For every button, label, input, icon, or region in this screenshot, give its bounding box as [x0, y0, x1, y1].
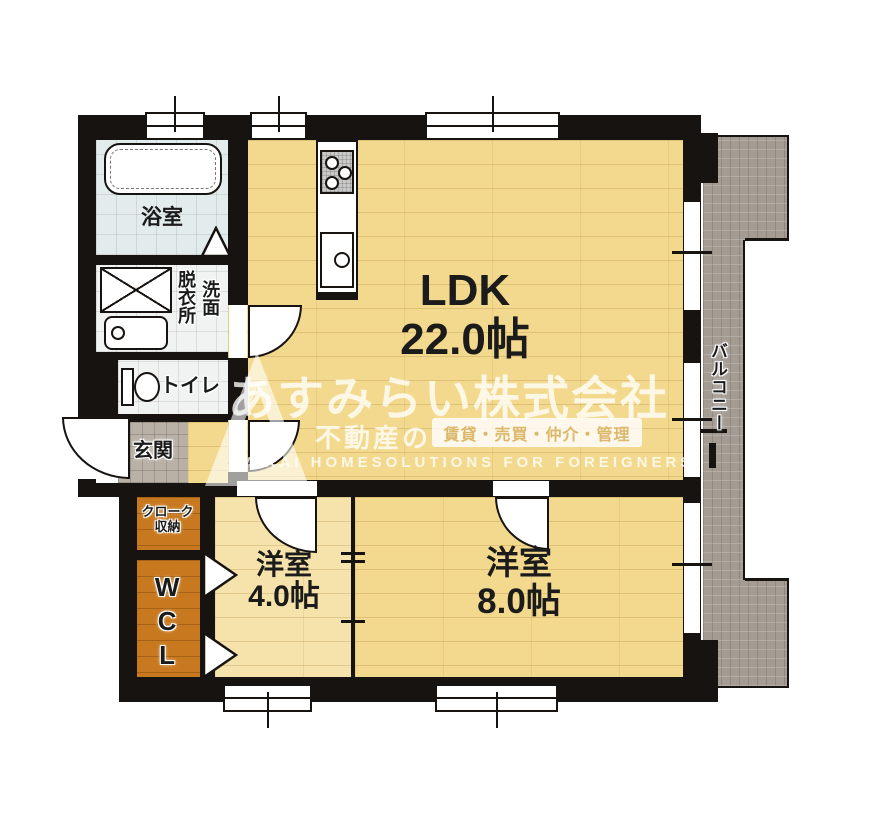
entrance-label: 玄関 — [118, 440, 188, 462]
wall-service-ldk-2 — [228, 358, 248, 420]
bathtub — [104, 143, 222, 195]
balcony-step-line-lower — [745, 578, 789, 581]
window-tick — [672, 418, 712, 421]
washroom-label-right: 洗面 — [200, 280, 220, 316]
bedroom-large-door-gap — [493, 481, 549, 496]
bedroom-small-door-gap — [237, 481, 317, 496]
window-ldk-top — [425, 112, 560, 140]
stove-icon — [320, 150, 354, 194]
bedroom-small-label: 洋室 4.0帖 — [215, 549, 353, 614]
wall-washroom-toilet — [118, 352, 228, 360]
window-ldk-balcony-1 — [684, 202, 700, 310]
floorplan-canvas: LDK 22.0帖 洋室 4.0帖 洋室 8.0帖 浴室 脱衣所 洗面 トイレ … — [0, 0, 882, 824]
bedroom-large-size: 8.0帖 — [355, 582, 683, 621]
burner-icon — [325, 156, 339, 170]
ldk-size: 22.0帖 — [320, 315, 610, 364]
balcony-step-line-upper — [745, 238, 789, 241]
cloak-line2: 収納 — [130, 520, 205, 535]
wall-balcony-stub-top — [701, 133, 718, 183]
washroom-label-left: 脱衣所 — [176, 270, 196, 324]
window-bedroom-balcony — [684, 503, 700, 633]
washing-machine-space — [100, 267, 172, 313]
balcony-partition-mark-v — [709, 443, 716, 468]
hall-floor — [188, 422, 228, 483]
wall-toilet-entrance — [118, 414, 228, 422]
ldk-name: LDK — [320, 266, 610, 315]
wcl-label: WCL — [152, 572, 181, 674]
cloak-label: クローク 収納 — [130, 505, 205, 534]
window-bathroom — [145, 112, 205, 140]
bedroom-small-size: 4.0帖 — [215, 580, 353, 614]
balcony-label: バルコニー — [708, 342, 727, 432]
hall-ldk-door-gap — [229, 420, 247, 472]
window-bedroom-small — [223, 684, 312, 712]
bathroom-folding-door-icon — [200, 226, 232, 258]
wall-balcony-stub-bottom — [701, 640, 718, 702]
wcl-folding-door-icon — [202, 631, 238, 679]
window-kitchen — [250, 112, 307, 140]
washroom-door-gap — [229, 305, 247, 358]
bathroom-label: 浴室 — [96, 206, 228, 230]
wall-cloak-top — [78, 483, 237, 497]
bedroom-small-name: 洋室 — [215, 549, 353, 580]
toilet-label: トイレ — [152, 375, 228, 397]
bedroom-large-label: 洋室 8.0帖 — [355, 545, 683, 621]
toilet-tank — [121, 368, 134, 406]
wall-toilet-left — [96, 352, 118, 422]
window-bedroom-large — [435, 684, 558, 712]
window-tick — [672, 251, 712, 254]
cloak-line1: クローク — [130, 505, 205, 520]
wall-service-ldk-1 — [228, 140, 248, 305]
bedroom-large-name: 洋室 — [355, 545, 683, 582]
washbasin — [104, 316, 168, 350]
ldk-label: LDK 22.0帖 — [320, 266, 610, 365]
burner-icon — [325, 176, 339, 190]
wall-bottom — [119, 677, 701, 702]
burner-icon — [338, 166, 352, 180]
